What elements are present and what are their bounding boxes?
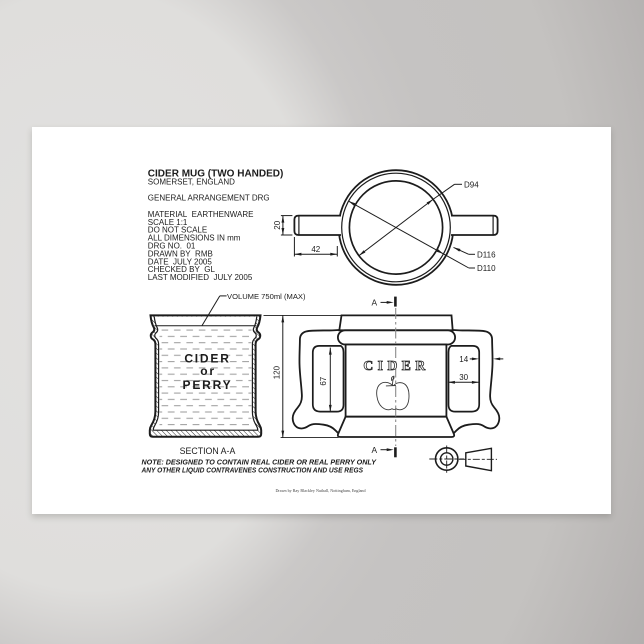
svg-text:120: 120 (273, 365, 282, 379)
svg-text:VOLUME 750ml (MAX): VOLUME 750ml (MAX) (227, 292, 306, 301)
svg-text:A: A (372, 445, 378, 455)
svg-text:20: 20 (273, 220, 282, 229)
svg-text:GENERAL ARRANGEMENT DRG: GENERAL ARRANGEMENT DRG (148, 194, 270, 203)
svg-text:LAST MODIFIED JULY 2005: LAST MODIFIED JULY 2005 (148, 273, 253, 282)
svg-text:Drawn by Ray Blackley Nuthall: Drawn by Ray Blackley Nuthall, Nottingha… (275, 488, 365, 494)
svg-text:or: or (200, 364, 216, 378)
svg-text:67: 67 (319, 376, 328, 385)
svg-text:D116: D116 (477, 250, 496, 259)
svg-text:A: A (372, 298, 378, 308)
svg-text:42: 42 (311, 245, 320, 254)
svg-text:SOMERSET, ENGLAND: SOMERSET, ENGLAND (148, 177, 235, 186)
svg-text:D94: D94 (464, 180, 479, 189)
svg-text:CIDER: CIDER (363, 358, 429, 373)
svg-text:SECTION A-A: SECTION A-A (180, 446, 236, 456)
svg-text:PERRY: PERRY (183, 378, 233, 392)
svg-text:14: 14 (459, 355, 468, 364)
svg-text:D110: D110 (477, 264, 496, 273)
svg-text:ANY OTHER LIQUID CONTRAVENES C: ANY OTHER LIQUID CONTRAVENES CONSTRUCTIO… (141, 466, 364, 475)
svg-text:30: 30 (459, 373, 468, 382)
